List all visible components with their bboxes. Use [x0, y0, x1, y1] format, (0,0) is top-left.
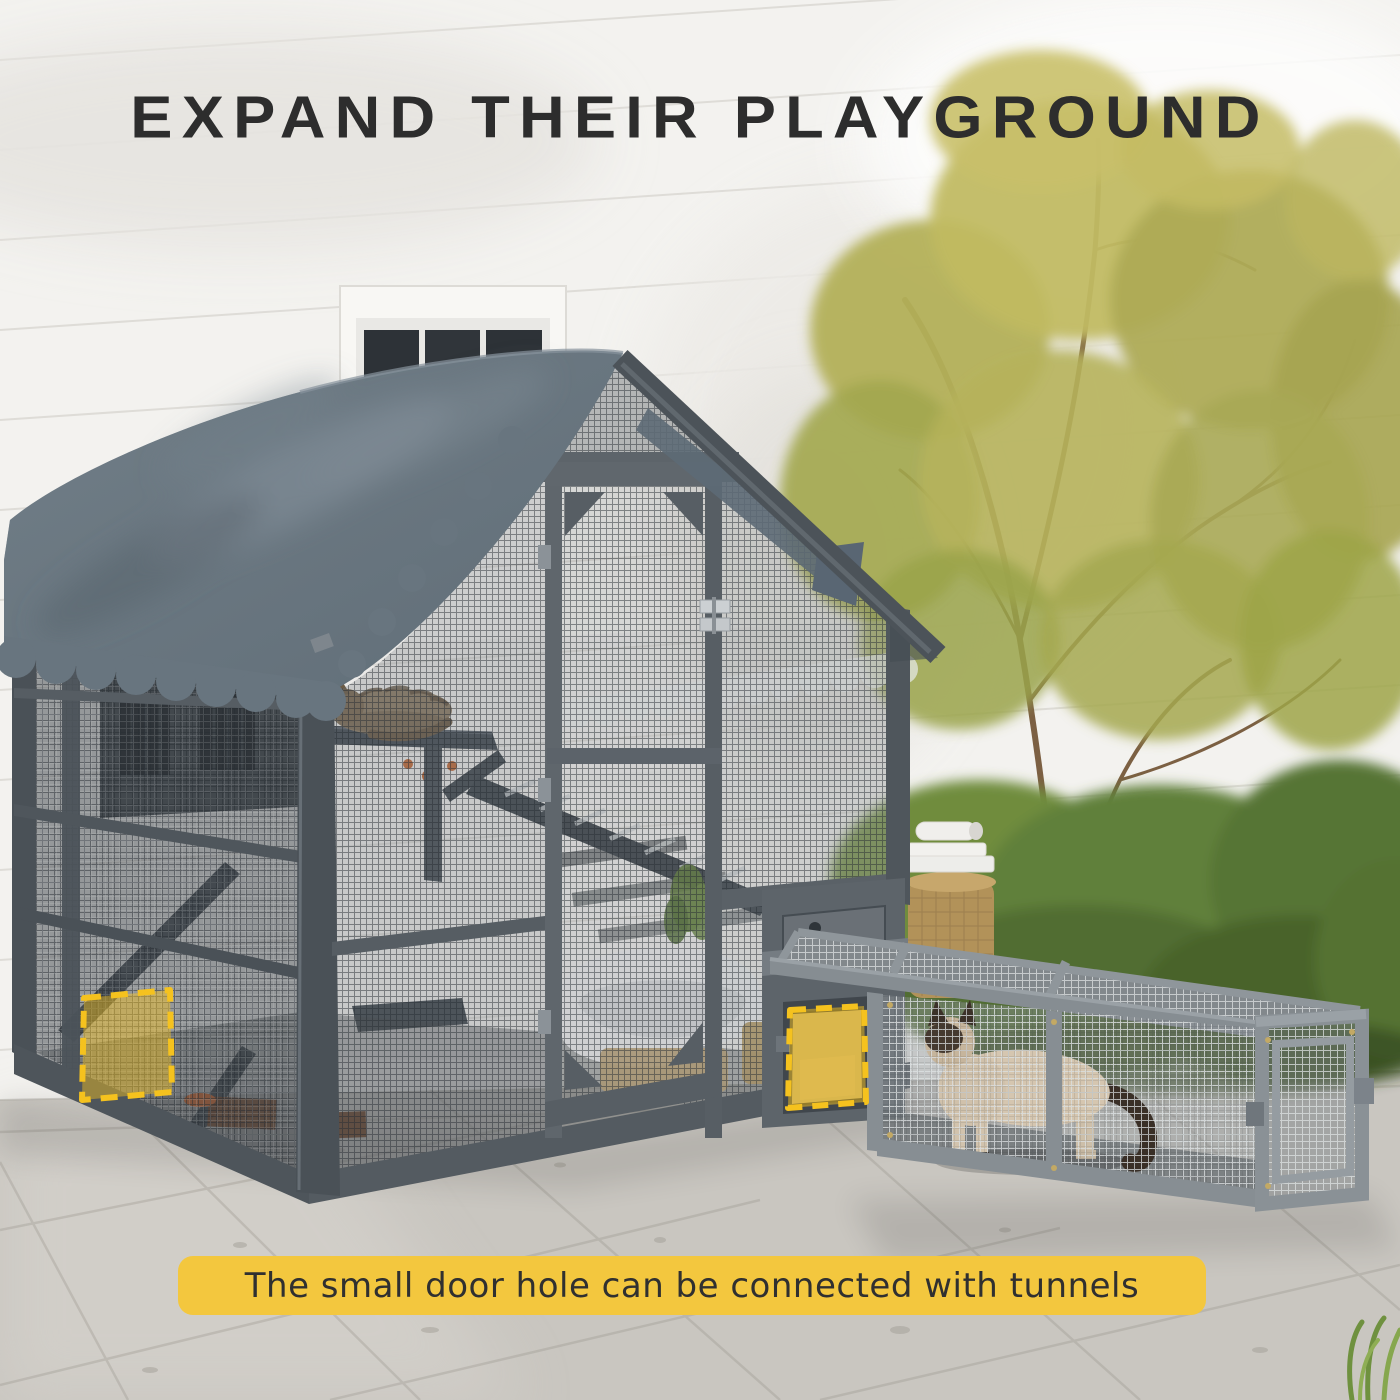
highlight-box-left: [82, 990, 172, 1100]
front-left-corner-post: [296, 684, 340, 1196]
photo-scene: [0, 0, 1400, 1400]
headline-text: EXPAND THEIR PLAYGROUND: [0, 88, 1400, 147]
highlight-box-right: [788, 1006, 866, 1108]
product-marketing-image: EXPAND THEIR PLAYGROUND The small door h…: [0, 0, 1400, 1400]
tunnel-mid-post: [1046, 1010, 1062, 1180]
end-door-hinge: [1246, 1102, 1264, 1126]
end-door-latch: [1354, 1078, 1374, 1104]
paper-stack: [902, 822, 994, 872]
caption-banner: The small door hole can be connected wit…: [178, 1256, 1206, 1315]
back-corner-post: [12, 648, 36, 1064]
door-mid-rail: [547, 748, 722, 764]
tunnel-end-door: [1246, 1014, 1374, 1206]
caption-text: The small door hole can be connected wit…: [245, 1266, 1139, 1306]
left-wall-post: [62, 656, 80, 1082]
